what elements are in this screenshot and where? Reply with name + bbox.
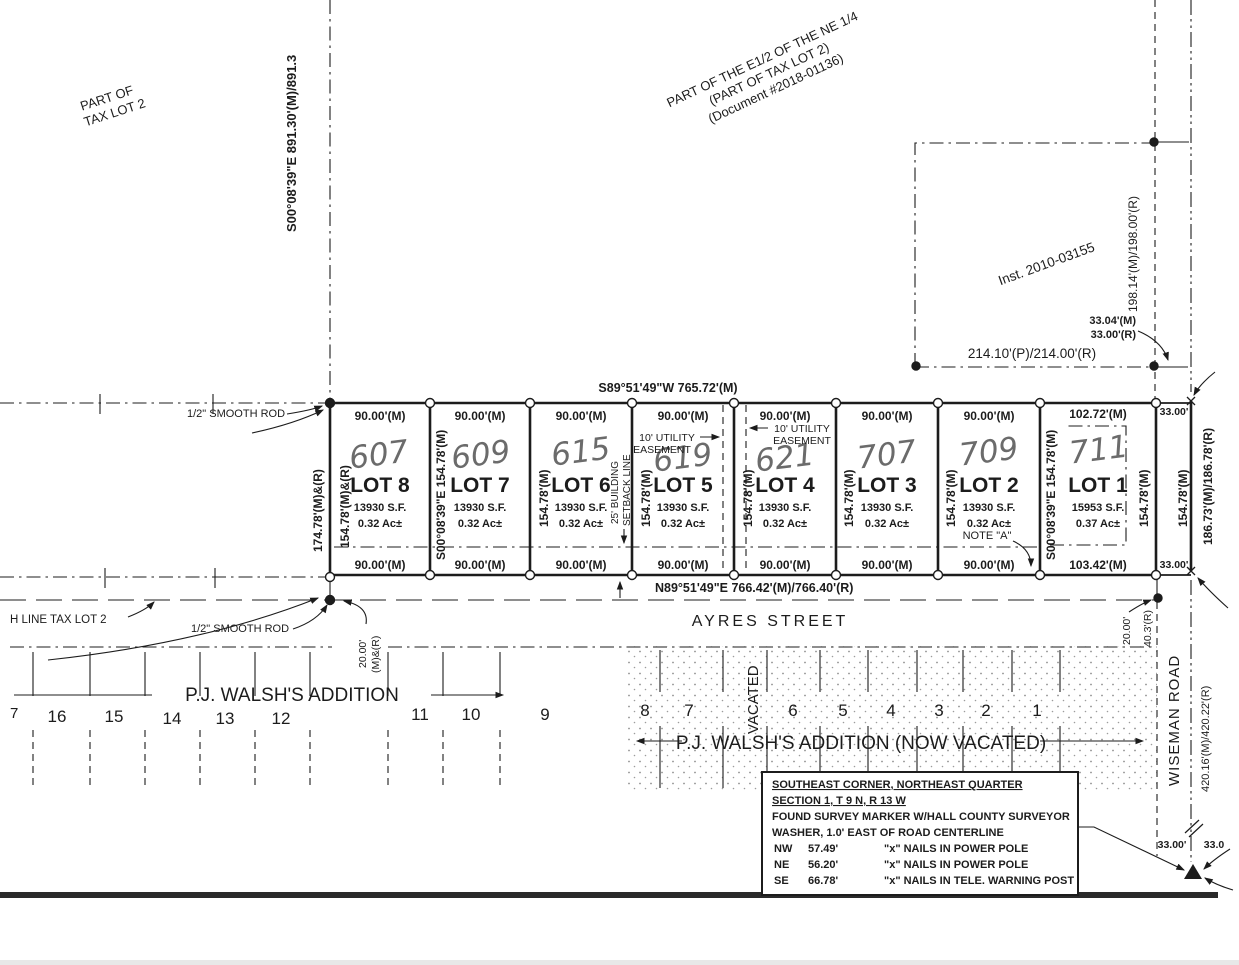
lot2-width-bottom: 90.00'(M) (964, 558, 1015, 572)
walsh-lot-2: 2 (981, 701, 990, 720)
wiseman-road-label: WISEMAN ROAD (1166, 655, 1183, 786)
dim-20-offset-unit: (M)&(R) (370, 636, 382, 673)
walsh-lot-1: 1 (1032, 701, 1041, 720)
corner-note-row3-dist: 66.78' (808, 875, 839, 887)
lot8-width-top: 90.00'(M) (355, 409, 406, 423)
west-quarter-line-dim: S00°08'39"E 891.30'(M)/891.3 (284, 55, 299, 232)
lot3-west-dim: 154.78'(M) (842, 469, 856, 527)
dim-33-br-right: 33.0 (1204, 839, 1225, 851)
dim-40-3: 40.3'(R) (1142, 610, 1154, 647)
dim-420: 420.16'(M)/420.22'(R) (1200, 686, 1212, 792)
lot1-width-bottom: 103.42'(M) (1069, 558, 1127, 572)
south-line-bearing: N89°51'49"E 766.42'(M)/766.40'(R) (655, 581, 853, 595)
lot8-address-handwritten: 607 (347, 434, 410, 477)
lot2-name: LOT 2 (959, 474, 1019, 497)
walsh-vacated-title: P.J. WALSH'S ADDITION (NOW VACATED) (676, 733, 1046, 754)
dim-198: 198.14'(M)/198.00'(R) (1126, 196, 1140, 312)
lot6-width-bottom: 90.00'(M) (556, 558, 607, 572)
lot7-name: LOT 7 (450, 474, 510, 497)
lot1-area-ac: 0.37 Ac± (1076, 518, 1120, 530)
lot8-area-sf: 13930 S.F. (354, 502, 407, 514)
lot5-area-ac: 0.32 Ac± (661, 518, 705, 530)
dim-33-bottom: 33.00' (1160, 559, 1189, 571)
lot7-area-sf: 13930 S.F. (454, 502, 507, 514)
lot1-name: LOT 1 (1068, 474, 1128, 497)
walsh-addition-title: P.J. WALSH'S ADDITION (185, 685, 399, 706)
lot2-address-handwritten: 709 (957, 431, 1020, 474)
smooth-rod-top-label: 1/2" SMOOTH ROD (187, 408, 285, 420)
lot3-width-bottom: 90.00'(M) (862, 558, 913, 572)
lot2-area-ac: 0.32 Ac± (967, 518, 1011, 530)
corner-note-row1-desc: "x" NAILS IN POWER POLE (884, 843, 1028, 855)
lot5-area-sf: 13930 S.F. (657, 502, 710, 514)
walsh-lot-11: 11 (411, 705, 429, 724)
corner-note-row3-desc: "x" NAILS IN TELE. WARNING POST (884, 875, 1074, 887)
walsh-lot-5: 5 (838, 701, 847, 720)
corner-note-row1-dir: NW (774, 843, 793, 855)
lot2-area-sf: 13930 S.F. (963, 502, 1016, 514)
lot6-name: LOT 6 (551, 474, 611, 497)
lot4-area-ac: 0.32 Ac± (763, 518, 807, 530)
lot3-name: LOT 3 (857, 474, 917, 497)
note-a-label: NOTE "A" (963, 530, 1012, 542)
lot3-area-sf: 13930 S.F. (861, 502, 914, 514)
walsh-lot-12: 12 (272, 709, 291, 728)
utility-easement-right-1: 10' UTILITY (774, 423, 830, 435)
corner-note-title1: SOUTHEAST CORNER, NORTHEAST QUARTER (772, 779, 1023, 791)
lot1-address-handwritten: 711 (1067, 429, 1130, 472)
corner-note-row2-dist: 56.20' (808, 859, 839, 871)
setback-label-2: SETBACK LINE (622, 454, 633, 526)
dim-33-top: 33.00' (1160, 406, 1189, 418)
dim-20-offset: 20.00' (357, 640, 369, 668)
corner-note-row3-dir: SE (774, 875, 789, 887)
ne-quarter-note: PART OF THE E1/2 OF THE NE 1/4 (PART OF … (664, 8, 873, 139)
utility-easement-left-2: EASEMENT (633, 444, 691, 456)
lot7-width-bottom: 90.00'(M) (455, 558, 506, 572)
walsh-lot-16: 16 (48, 707, 67, 726)
dim-20b: 20.00' (1121, 617, 1133, 645)
lot4-west-dim: 154.78'(M) (741, 469, 755, 527)
road-strip-dim: 154.78'(M) (1176, 469, 1190, 527)
lot7-address-handwritten: 609 (449, 434, 512, 477)
lot8-west-dim: 154.78'(M)&(R) (338, 465, 352, 548)
north-line-bearing: S89°51'49"W 765.72'(M) (598, 381, 737, 395)
inst-label: Inst. 2010-03155 (996, 239, 1096, 288)
corner-note-body2: WASHER, 1.0' EAST OF ROAD CENTERLINE (772, 827, 1004, 839)
walsh-lot-14: 14 (163, 709, 182, 728)
corner-note-title2: SECTION 1, T 9 N, R 13 W (772, 795, 906, 807)
corner-note-row2-desc: "x" NAILS IN POWER POLE (884, 859, 1028, 871)
lot5-name: LOT 5 (653, 474, 713, 497)
lot8-area-ac: 0.32 Ac± (358, 518, 402, 530)
lot5-width-bottom: 90.00'(M) (658, 558, 709, 572)
corner-note-row2-dir: NE (774, 859, 789, 871)
lot6-area-ac: 0.32 Ac± (559, 518, 603, 530)
walsh-lot-6: 6 (788, 701, 797, 720)
lot8-name: LOT 8 (350, 474, 410, 497)
corner-note-box: SOUTHEAST CORNER, NORTHEAST QUARTER SECT… (762, 772, 1078, 895)
east-line-dim: 186.73'(M)/186.78'(R) (1201, 428, 1215, 545)
lot2-west-dim: 154.78'(M) (944, 469, 958, 527)
dim-33-br-left: 33.00' (1158, 839, 1187, 851)
lot6-area-sf: 13930 S.F. (555, 502, 608, 514)
corner-note-body1: FOUND SURVEY MARKER W/HALL COUNTY SURVEY… (772, 811, 1070, 823)
smooth-rod-bottom-label: 1/2" SMOOTH ROD (191, 623, 289, 635)
lot6-west-dim: 154.78'(M) (537, 469, 551, 527)
walsh-lot-3: 3 (934, 701, 943, 720)
lot5-west-dim: 154.78'(M) (639, 469, 653, 527)
survey-plat-page: PART OF TAX LOT 2 PART OF THE E1/2 OF TH… (0, 0, 1239, 960)
utility-easement-right-2: EASEMENT (773, 435, 831, 447)
tax-lot-2-note: PART OF TAX LOT 2 (77, 80, 147, 129)
walsh-lot-10: 10 (462, 705, 481, 724)
lot7-area-ac: 0.32 Ac± (458, 518, 502, 530)
lot5-width-top: 90.00'(M) (658, 409, 709, 423)
lot7-width-top: 90.00'(M) (455, 409, 506, 423)
walsh-lot-13: 13 (216, 709, 235, 728)
lot4-name: LOT 4 (755, 474, 815, 497)
lot1-area-sf: 15953 S.F. (1072, 502, 1125, 514)
plat-drawing: PART OF TAX LOT 2 PART OF THE E1/2 OF TH… (0, 0, 1239, 960)
walsh-lot-7-left: 7 (10, 705, 18, 722)
lot1-width-top: 102.72'(M) (1069, 407, 1127, 421)
lot7-west-bearing: S00°08'39"E 154.78'(M) (434, 430, 448, 560)
lot3-width-top: 90.00'(M) (862, 409, 913, 423)
lot4-width-bottom: 90.00'(M) (760, 558, 811, 572)
corner-note-row1-dist: 57.49' (808, 843, 839, 855)
ayres-street-label: AYRES STREET (692, 613, 849, 630)
lot4-width-top: 90.00'(M) (760, 409, 811, 423)
lot2-width-top: 90.00'(M) (964, 409, 1015, 423)
lot8-west-dim-full: 174.78'(M)&(R) (311, 469, 325, 552)
lot3-address-handwritten: 707 (855, 434, 918, 477)
walsh-lot-4: 4 (886, 701, 895, 720)
lot1-west-bearing: S00°08'39"E 154.78'(M) (1044, 430, 1058, 560)
walsh-lot-9: 9 (540, 705, 549, 724)
walsh-lot-15: 15 (105, 707, 124, 726)
lot1-east-dim: 154.78'(M) (1137, 469, 1151, 527)
lot4-area-sf: 13930 S.F. (759, 502, 812, 514)
lot6-address-handwritten: 615 (549, 431, 612, 474)
dim-33-04: 33.04'(M) (1089, 315, 1136, 327)
lot8-width-bottom: 90.00'(M) (355, 558, 406, 572)
setback-label-1: 25' BUILDING (610, 461, 621, 524)
walsh-lot-8: 8 (640, 701, 649, 720)
lot3-area-ac: 0.32 Ac± (865, 518, 909, 530)
utility-easement-left-1: 10' UTILITY (639, 432, 695, 444)
h-line-tax-lot-2: H LINE TAX LOT 2 (10, 614, 107, 626)
vacated-label: VACATED (745, 665, 762, 734)
dim-214: 214.10'(P)/214.00'(R) (968, 346, 1096, 361)
lot6-width-top: 90.00'(M) (556, 409, 607, 423)
walsh-lot-7: 7 (684, 701, 693, 720)
dim-33-00r: 33.00'(R) (1091, 329, 1137, 341)
